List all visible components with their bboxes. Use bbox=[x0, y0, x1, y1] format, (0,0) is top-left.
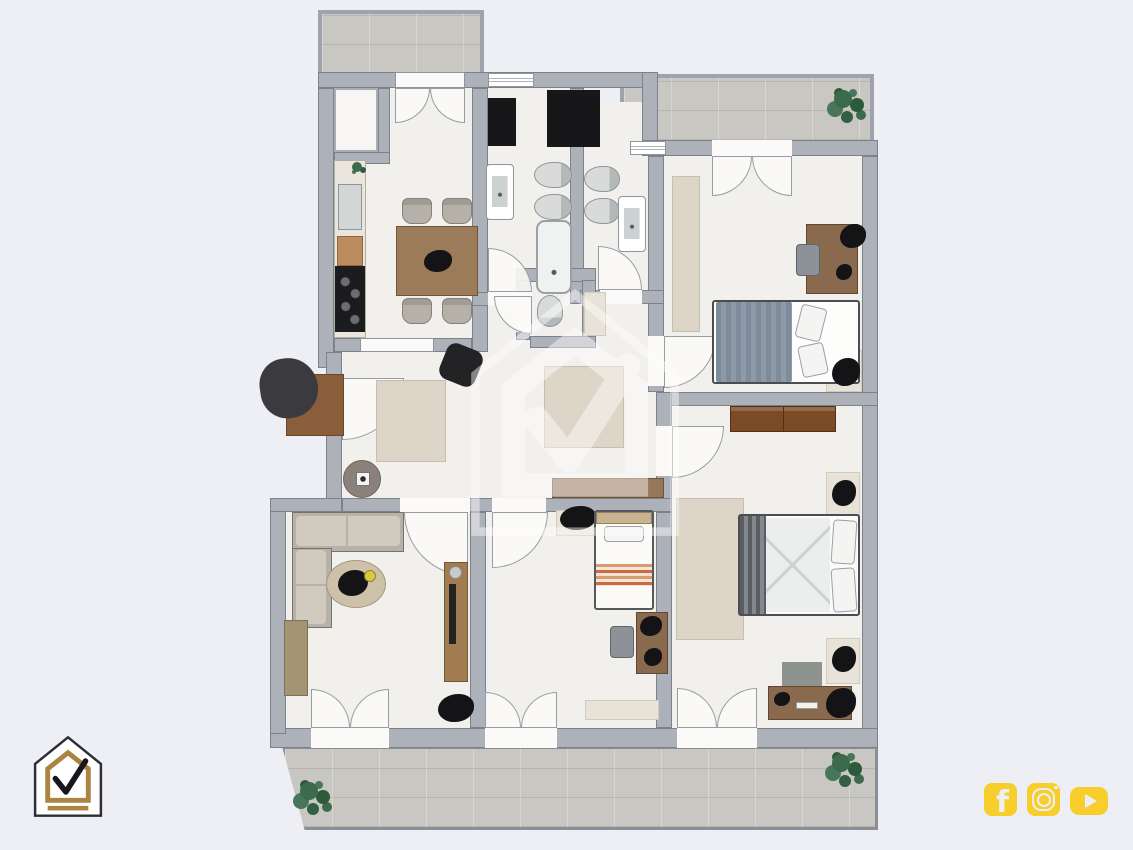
bathroom2-bidet bbox=[584, 198, 620, 224]
bathroom2-door-gap bbox=[600, 290, 642, 304]
bedroom1-chair bbox=[796, 244, 820, 276]
dining-chair bbox=[402, 198, 432, 224]
instagram-icon[interactable] bbox=[1027, 783, 1060, 816]
bedroom2-chair bbox=[610, 626, 634, 658]
bathroom1-toilet bbox=[534, 162, 572, 188]
bedroom1-bed-blanket bbox=[716, 302, 792, 382]
wall bbox=[664, 392, 878, 406]
wc-mat bbox=[584, 292, 606, 336]
wall bbox=[270, 498, 342, 512]
balcony-top-left bbox=[318, 10, 484, 78]
bathroom2-sink bbox=[618, 196, 646, 252]
bathroom2-toilet bbox=[584, 166, 620, 192]
dining-chair bbox=[402, 298, 432, 324]
wall bbox=[318, 88, 334, 368]
master-terrace-door-gap bbox=[677, 728, 757, 748]
wall bbox=[530, 336, 596, 348]
balcony-top-right bbox=[620, 74, 874, 140]
kitchen-closet bbox=[334, 88, 378, 152]
kitchen-balcony-door-gap bbox=[395, 72, 465, 88]
cutting-board bbox=[337, 236, 363, 266]
hall-rug-2 bbox=[544, 366, 624, 448]
bed-pillow bbox=[830, 519, 857, 565]
bathroom1-bidet bbox=[534, 194, 572, 220]
speaker bbox=[449, 566, 462, 579]
bedroom1-window bbox=[630, 141, 666, 155]
hall-rug bbox=[376, 380, 446, 462]
sofa-cushions bbox=[296, 550, 326, 624]
living-sideboard bbox=[284, 620, 308, 696]
bedroom2-door-gap bbox=[492, 498, 546, 512]
tv bbox=[449, 584, 456, 644]
social-icons: f bbox=[984, 783, 1108, 816]
terrace-plant bbox=[300, 782, 318, 800]
wall bbox=[470, 512, 486, 728]
house-check-logo bbox=[33, 735, 103, 818]
bedroom2-headboard bbox=[596, 512, 652, 524]
facebook-icon[interactable]: f bbox=[984, 783, 1017, 816]
wall bbox=[862, 156, 878, 748]
kitchen-plant bbox=[352, 162, 362, 172]
bathroom-window bbox=[488, 73, 534, 87]
bedroom2-rug bbox=[585, 700, 659, 720]
hall-sideboard bbox=[552, 478, 664, 498]
bedroom2-terrace-door-gap bbox=[485, 728, 557, 748]
dining-chair bbox=[442, 198, 472, 224]
terrace-plant bbox=[832, 754, 850, 772]
master-wardrobe bbox=[730, 406, 836, 432]
utility-shaft bbox=[547, 90, 600, 147]
terrace bbox=[282, 746, 878, 830]
youtube-icon[interactable] bbox=[1070, 787, 1108, 815]
kitchen-sink bbox=[338, 184, 362, 230]
wall bbox=[472, 88, 488, 352]
utility-shaft bbox=[488, 98, 516, 146]
master-bed-foot-blanket bbox=[740, 516, 766, 614]
facebook-glyph: f bbox=[996, 788, 1009, 816]
bedroom2-bed bbox=[594, 510, 654, 610]
wc-toilet bbox=[537, 295, 563, 327]
master-door-gap bbox=[656, 426, 672, 476]
logo-house-outline bbox=[35, 737, 101, 815]
hall-side-table-tray bbox=[356, 472, 370, 486]
master-bed-duvet bbox=[766, 518, 830, 612]
living-door-gap bbox=[400, 498, 470, 512]
master-tv-mat bbox=[782, 662, 822, 688]
bedroom2-striped-blanket bbox=[596, 564, 652, 586]
balcony-plant bbox=[834, 90, 852, 108]
bedroom1-rug bbox=[672, 176, 700, 332]
bed-pillow bbox=[830, 567, 857, 613]
coffee-table-bowl bbox=[364, 570, 376, 582]
wall bbox=[270, 498, 286, 734]
master-rug bbox=[676, 498, 744, 640]
dining-chair bbox=[442, 298, 472, 324]
logo-base-bar bbox=[48, 806, 89, 811]
living-terrace-door-gap bbox=[311, 728, 389, 748]
floor-plan bbox=[0, 0, 1133, 850]
youtube-play-triangle bbox=[1085, 794, 1097, 808]
instagram-flash-dot bbox=[1054, 786, 1058, 790]
instagram-lens bbox=[1037, 793, 1051, 807]
stove-burners bbox=[338, 272, 362, 326]
tv-bench bbox=[444, 562, 468, 682]
sofa-cushions bbox=[296, 516, 400, 546]
keyboard bbox=[796, 702, 818, 709]
bathtub bbox=[536, 220, 572, 294]
bed-pillow bbox=[604, 526, 644, 542]
bedroom1-balcony-door-gap bbox=[712, 140, 792, 156]
bathroom1-sink bbox=[486, 164, 514, 220]
bedroom1-door-gap bbox=[648, 336, 664, 386]
kitchen-hall-opening bbox=[360, 338, 434, 352]
floor-plan-page: f bbox=[0, 0, 1133, 850]
